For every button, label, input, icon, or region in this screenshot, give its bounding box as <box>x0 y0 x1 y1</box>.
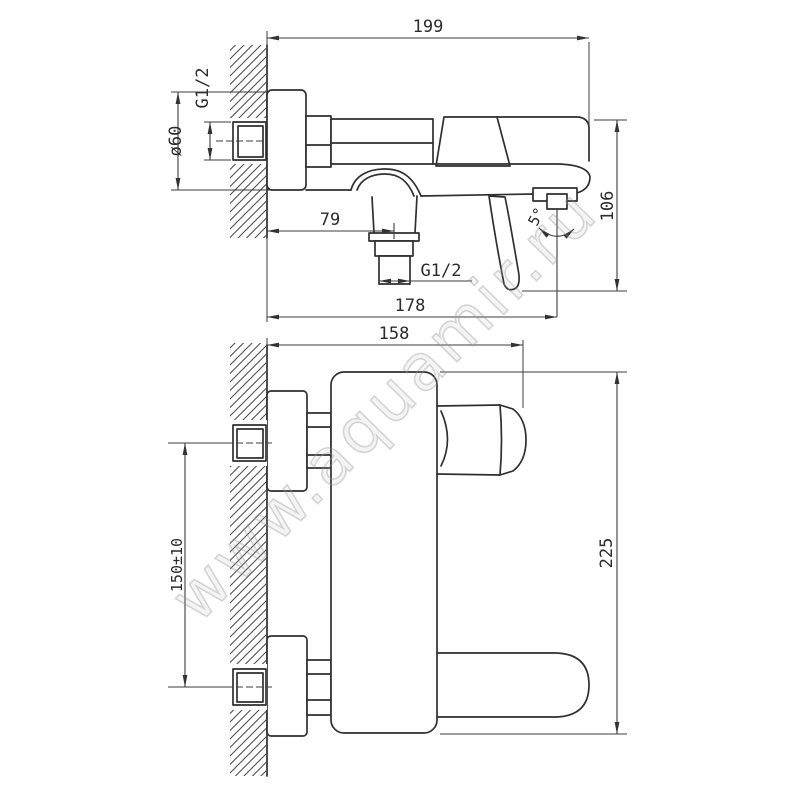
handle-knob-cap <box>500 405 526 475</box>
connector-nut <box>307 660 331 715</box>
outlet-pipe-side <box>415 196 417 233</box>
cartridge-housing <box>436 117 510 166</box>
dim-spout-offset-label: 79 <box>320 210 340 230</box>
spout-dome-inner <box>357 174 414 196</box>
escutcheon-plate <box>267 90 306 190</box>
handle-knob-cap-seam <box>500 405 502 475</box>
handle-lever-top <box>497 117 589 161</box>
connector-nut <box>306 116 331 167</box>
dim-total-length-label: 199 <box>413 17 444 37</box>
handle-knob-bottom <box>437 474 500 475</box>
handle-knob-seam <box>441 411 448 466</box>
body-tube <box>331 119 433 164</box>
drawing-page: 199 G1/2 ø60 <box>0 0 800 800</box>
body-underside-right <box>421 194 533 196</box>
technical-drawing: 199 G1/2 ø60 <box>0 0 800 800</box>
outlet-body <box>375 241 413 256</box>
dim-inlet-thread-label: G1/2 <box>193 68 213 109</box>
dim-escutcheon-diameter-label: ø60 <box>166 126 186 157</box>
handle-knob-top <box>437 405 500 406</box>
dim-overall-height-label: 225 <box>597 538 617 569</box>
tub-spout <box>437 653 589 717</box>
outlet-pipe-side <box>372 197 374 233</box>
outlet-thread-tube <box>379 256 410 284</box>
escutcheon-plate <box>267 636 307 736</box>
dim-length-to-outlet-label: 178 <box>395 296 426 316</box>
dim-outlet-thread-label: G1/2 <box>421 261 462 281</box>
